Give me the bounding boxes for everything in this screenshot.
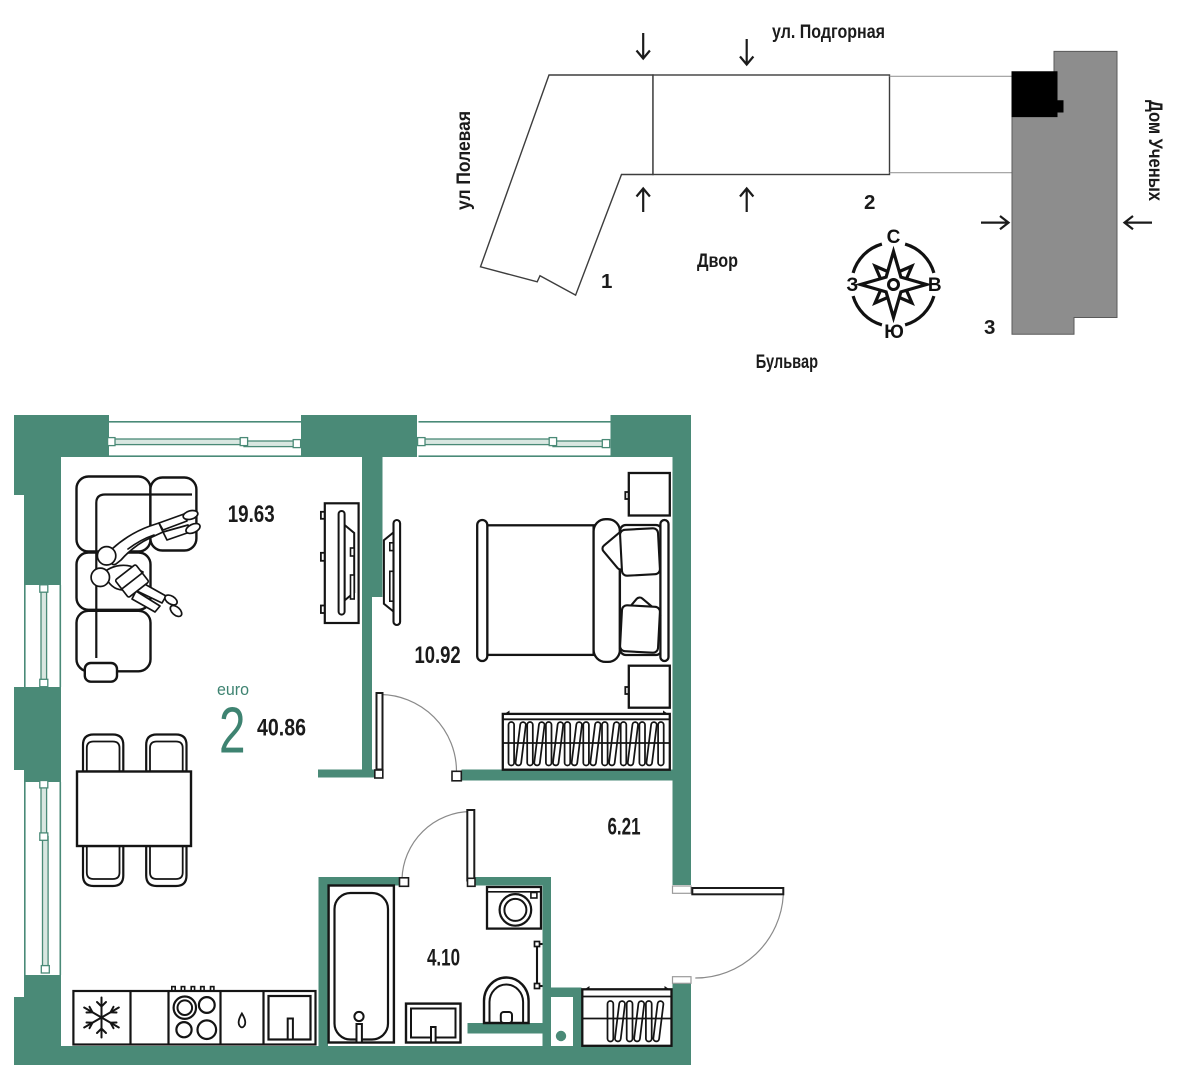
svg-text:ул Полевая: ул Полевая xyxy=(454,111,475,210)
svg-text:ул. Подгорная: ул. Подгорная xyxy=(772,22,885,43)
svg-text:Дом Ученых: Дом Ученых xyxy=(1144,100,1165,201)
svg-text:3: 3 xyxy=(984,316,995,339)
svg-text:2: 2 xyxy=(219,694,246,767)
svg-text:Бульвар: Бульвар xyxy=(756,352,818,373)
svg-text:Ю: Ю xyxy=(884,322,904,343)
svg-text:Двор: Двор xyxy=(697,251,738,272)
svg-text:С: С xyxy=(887,227,901,248)
svg-text:1: 1 xyxy=(601,270,612,293)
svg-text:19.63: 19.63 xyxy=(228,501,275,528)
svg-text:40.86: 40.86 xyxy=(257,715,306,742)
svg-text:В: В xyxy=(928,275,942,296)
svg-text:З: З xyxy=(846,275,858,296)
svg-text:10.92: 10.92 xyxy=(415,642,461,669)
svg-text:2: 2 xyxy=(864,191,875,214)
svg-text:4.10: 4.10 xyxy=(427,945,460,972)
svg-text:6.21: 6.21 xyxy=(608,814,641,841)
